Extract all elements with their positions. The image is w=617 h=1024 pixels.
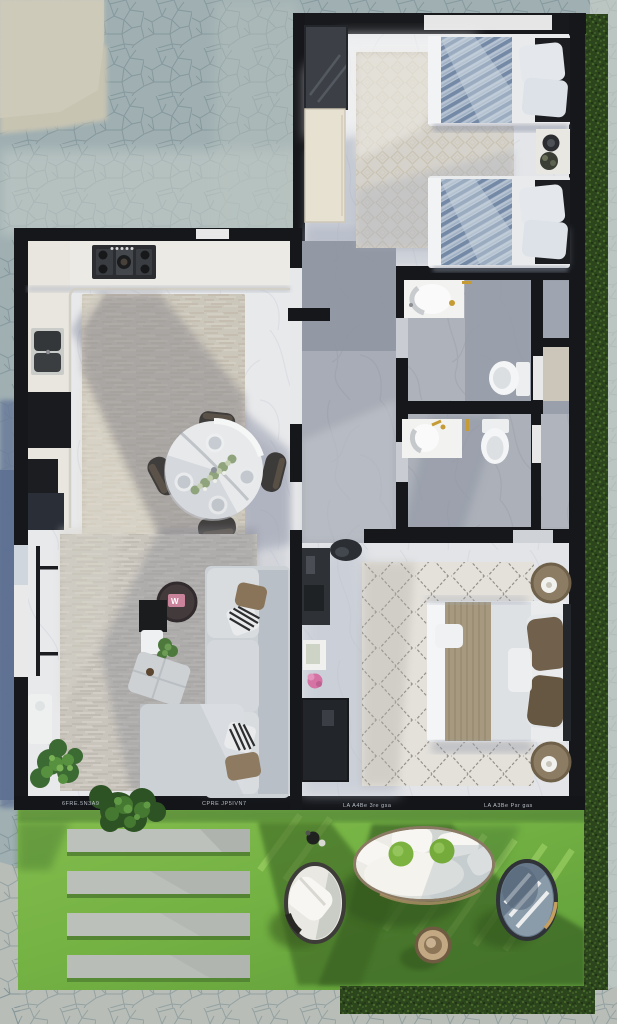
svg-text:CPRE JP5IVN7: CPRE JP5IVN7	[202, 801, 247, 807]
svg-text:LA A3Be Psr gas: LA A3Be Psr gas	[484, 803, 533, 809]
svg-text:6FRE.5N3A9: 6FRE.5N3A9	[62, 801, 99, 807]
svg-text:LA A4Be 3re gsa: LA A4Be 3re gsa	[343, 803, 392, 809]
svg-text:W: W	[171, 597, 179, 606]
